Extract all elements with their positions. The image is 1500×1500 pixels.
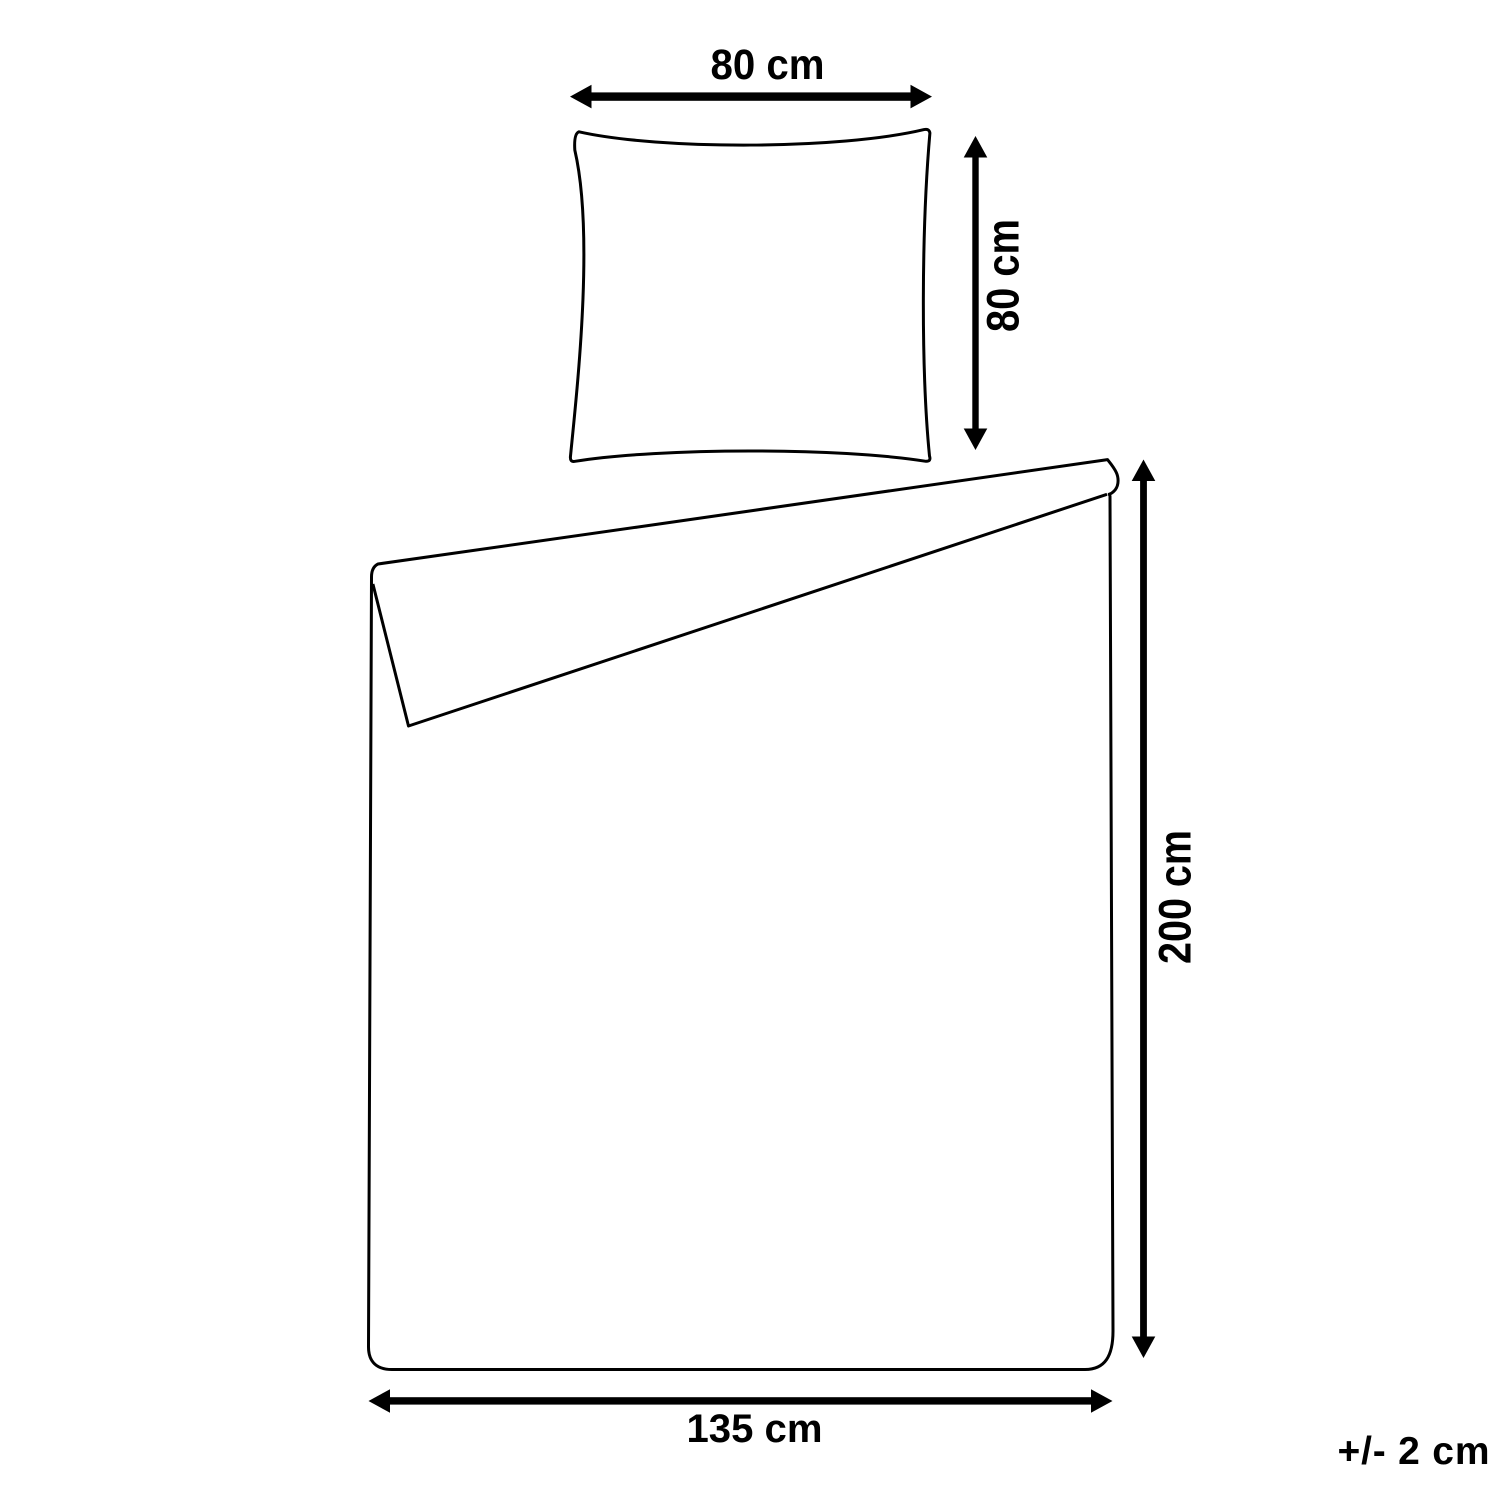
svg-text:+/- 2 cm: +/- 2 cm	[1338, 1430, 1490, 1473]
svg-text:135 cm: 135 cm	[687, 1407, 823, 1451]
svg-text:80 cm: 80 cm	[978, 219, 1029, 332]
svg-text:80 cm: 80 cm	[711, 41, 825, 89]
svg-text:200 cm: 200 cm	[1150, 830, 1201, 964]
